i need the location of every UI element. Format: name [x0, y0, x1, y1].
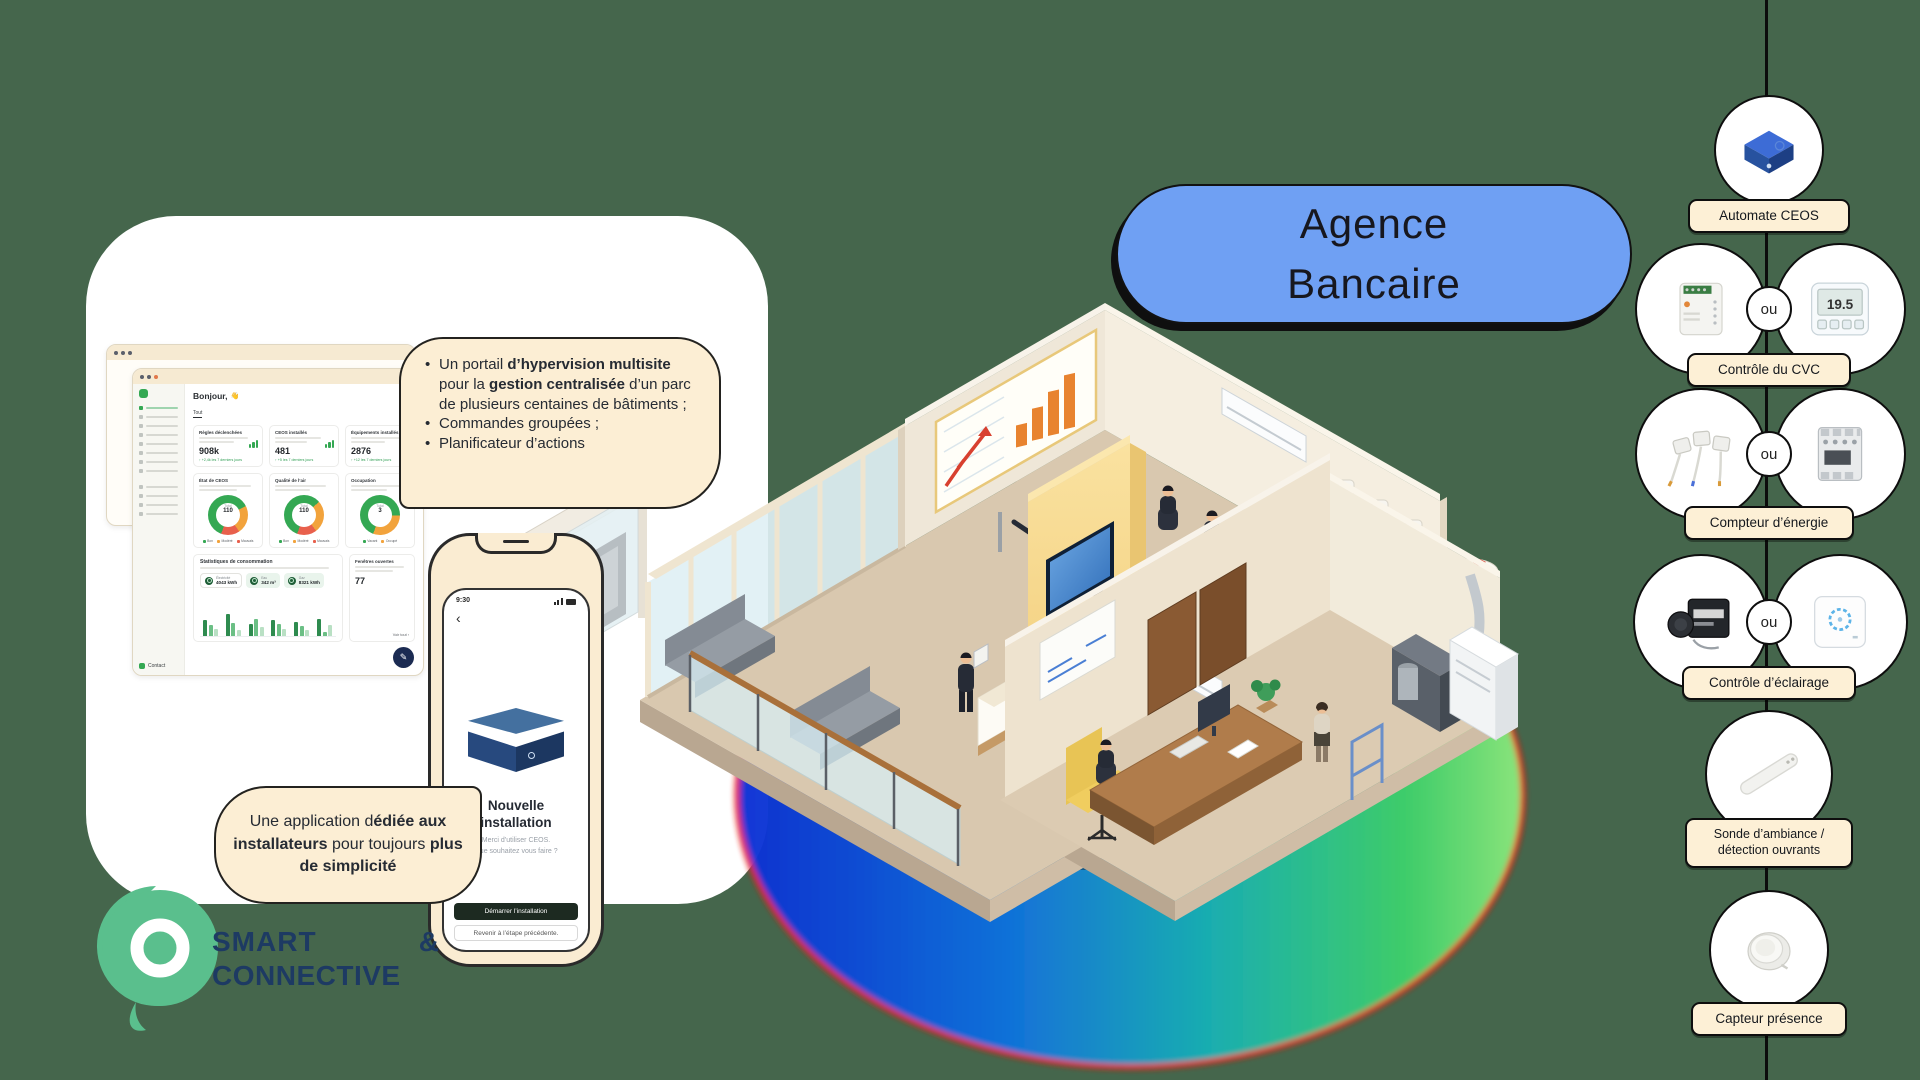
- sidebar-item[interactable]: [139, 406, 178, 410]
- dashboard-window: Contact ⚙ Bonjour, 👋 Tout Règles déclenc…: [132, 368, 424, 676]
- stat-card: Règles déclenchées 908k ↑ +2,4k les 7 de…: [193, 425, 263, 467]
- callout-bullet: Commandes groupées ;: [439, 414, 699, 434]
- start-install-button[interactable]: Démarrer l’installation: [454, 903, 578, 920]
- signal-battery-icons: [554, 598, 576, 605]
- ou-connector: ou: [1746, 599, 1792, 645]
- device-label: Contrôle du CVC: [1687, 353, 1851, 387]
- installer-app-callout: Une application dédiée aux installateurs…: [214, 786, 482, 904]
- din-meter-icon: [1804, 418, 1876, 490]
- window-dot: [140, 375, 144, 379]
- electricity-icon: [205, 577, 213, 585]
- donut-legend: VacantOccupé: [363, 539, 397, 543]
- sidebar-contact[interactable]: Contact: [139, 663, 165, 669]
- donut-chart: Total110: [284, 495, 324, 535]
- ceos-box-icon: [1737, 118, 1801, 182]
- chip-electricity[interactable]: Électricité 4043 kWh: [200, 573, 242, 588]
- touch-switch-icon: [1802, 584, 1878, 660]
- device-energy-meter: [1774, 388, 1906, 520]
- sidebar-item[interactable]: [139, 442, 178, 446]
- thermostat-icon: 19.5: [1803, 272, 1877, 346]
- device-label: Automate CEOS: [1688, 199, 1850, 233]
- callout-bullet: Un portail d’hypervision multisite pour …: [439, 355, 699, 414]
- donut-chart: Total110: [208, 495, 248, 535]
- hypervision-callout: Un portail d’hypervision multisite pour …: [399, 337, 721, 509]
- cvc-controller-icon: [1666, 274, 1736, 344]
- infographic-page: { "colors": { "background": "#45664C", "…: [0, 0, 1920, 1080]
- window-dot: [154, 375, 158, 379]
- sidebar-item[interactable]: [139, 485, 178, 489]
- donut-legend: BonModéréMauvais: [279, 539, 330, 543]
- title-banner: Agence Bancaire: [1116, 184, 1632, 324]
- tab-tout[interactable]: Tout: [193, 410, 202, 418]
- donut-card: Qualité de l’air Total110 BonModéréMauva…: [269, 473, 339, 548]
- consumption-card: Statistiques de consommation Électricité…: [193, 554, 343, 642]
- svg-text:19.5: 19.5: [1827, 297, 1854, 312]
- window-dot: [147, 375, 151, 379]
- back-icon[interactable]: ‹: [456, 612, 461, 624]
- app-logo-icon: [139, 389, 148, 398]
- ou-connector: ou: [1746, 286, 1792, 332]
- phone-notch: [475, 533, 557, 554]
- sidebar-item[interactable]: [139, 433, 178, 437]
- smart-connective-wordmark: SMART& CONNECTIVE: [212, 926, 440, 992]
- sidebar-menu[interactable]: [139, 406, 178, 516]
- dashboard-greeting: Bonjour, 👋: [193, 391, 415, 401]
- presence-sensor-icon: [1732, 913, 1806, 987]
- donut-cards-row: État de CEOS Total110 BonModéréMauvais Q…: [193, 473, 415, 548]
- consumption-bar-chart: [200, 594, 336, 637]
- water-icon: [250, 577, 258, 585]
- sidebar-item[interactable]: [139, 494, 178, 498]
- window-titlebar: [107, 345, 415, 360]
- window-titlebar: [133, 369, 423, 384]
- device-label: Sonde d’ambiance / détection ouvrants: [1685, 818, 1853, 868]
- title-line: Bancaire: [1287, 254, 1461, 314]
- chip-water[interactable]: Eau 342 m³: [246, 573, 280, 588]
- smart-connective-logo-icon: [96, 878, 228, 1038]
- open-windows-card: Fenêtres ouvertes 77 Voir tout ›: [349, 554, 415, 642]
- device-label: Compteur d’énergie: [1684, 506, 1854, 540]
- stick-sensor-icon: [1727, 732, 1811, 816]
- window-dot: [114, 351, 118, 355]
- window-dot: [128, 351, 132, 355]
- mini-bars-icon: [249, 440, 259, 448]
- donut-legend: BonModéréMauvais: [203, 539, 254, 543]
- donut-card: État de CEOS Total110 BonModéréMauvais: [193, 473, 263, 548]
- gas-icon: [288, 577, 296, 585]
- contact-icon: [139, 663, 145, 669]
- device-presence-sensor: [1709, 890, 1829, 1010]
- dashboard-main: ⚙ Bonjour, 👋 Tout Règles déclenchées 908…: [185, 384, 423, 675]
- installer-app-phone-mockup: 9:30 ‹ Nouvelle installation Merci d’uti…: [428, 533, 604, 967]
- relay-module-icon: [1663, 584, 1739, 660]
- donut-chart: Total3: [360, 495, 400, 535]
- contact-label: Contact: [148, 663, 165, 669]
- wave-emoji: 👋: [230, 392, 239, 400]
- stat-cards-row: Règles déclenchées 908k ↑ +2,4k les 7 de…: [193, 425, 415, 467]
- edit-fab-button[interactable]: ✎: [393, 647, 414, 668]
- phone-screen: 9:30 ‹ Nouvelle installation Merci d’uti…: [442, 588, 590, 952]
- device-label: Capteur présence: [1691, 1002, 1847, 1036]
- current-clamps-icon: [1664, 417, 1738, 491]
- phone-time: 9:30: [456, 597, 470, 604]
- sidebar-item[interactable]: [139, 424, 178, 428]
- title-line: Agence: [1300, 194, 1448, 254]
- bottom-cards-row: Statistiques de consommation Électricité…: [193, 554, 415, 642]
- ou-connector: ou: [1746, 431, 1792, 477]
- sidebar-item[interactable]: [139, 460, 178, 464]
- device-label: Contrôle d’éclairage: [1682, 666, 1856, 700]
- callout-bullet: Planificateur d’actions: [439, 434, 699, 454]
- consumption-chips: Électricité 4043 kWh Eau 342 m³ Gaz: [200, 573, 336, 588]
- sidebar-item[interactable]: [139, 415, 178, 419]
- device-automate-ceos: [1714, 95, 1824, 205]
- sidebar-item[interactable]: [139, 503, 178, 507]
- sidebar-item[interactable]: [139, 451, 178, 455]
- previous-step-button[interactable]: Revenir à l’étape précédente.: [454, 925, 578, 941]
- mini-bars-icon: [325, 440, 335, 448]
- sidebar-item[interactable]: [139, 469, 178, 473]
- window-dot: [121, 351, 125, 355]
- voir-tout-link[interactable]: Voir tout ›: [393, 633, 409, 637]
- stat-card: CEOS installés 481 ↑ +5 les 7 derniers j…: [269, 425, 339, 467]
- ceos-box-illustration: [468, 708, 564, 774]
- dashboard-sidebar: Contact: [133, 384, 185, 675]
- chip-gas[interactable]: Gaz 8321 kWh: [284, 573, 324, 588]
- sidebar-item[interactable]: [139, 512, 178, 516]
